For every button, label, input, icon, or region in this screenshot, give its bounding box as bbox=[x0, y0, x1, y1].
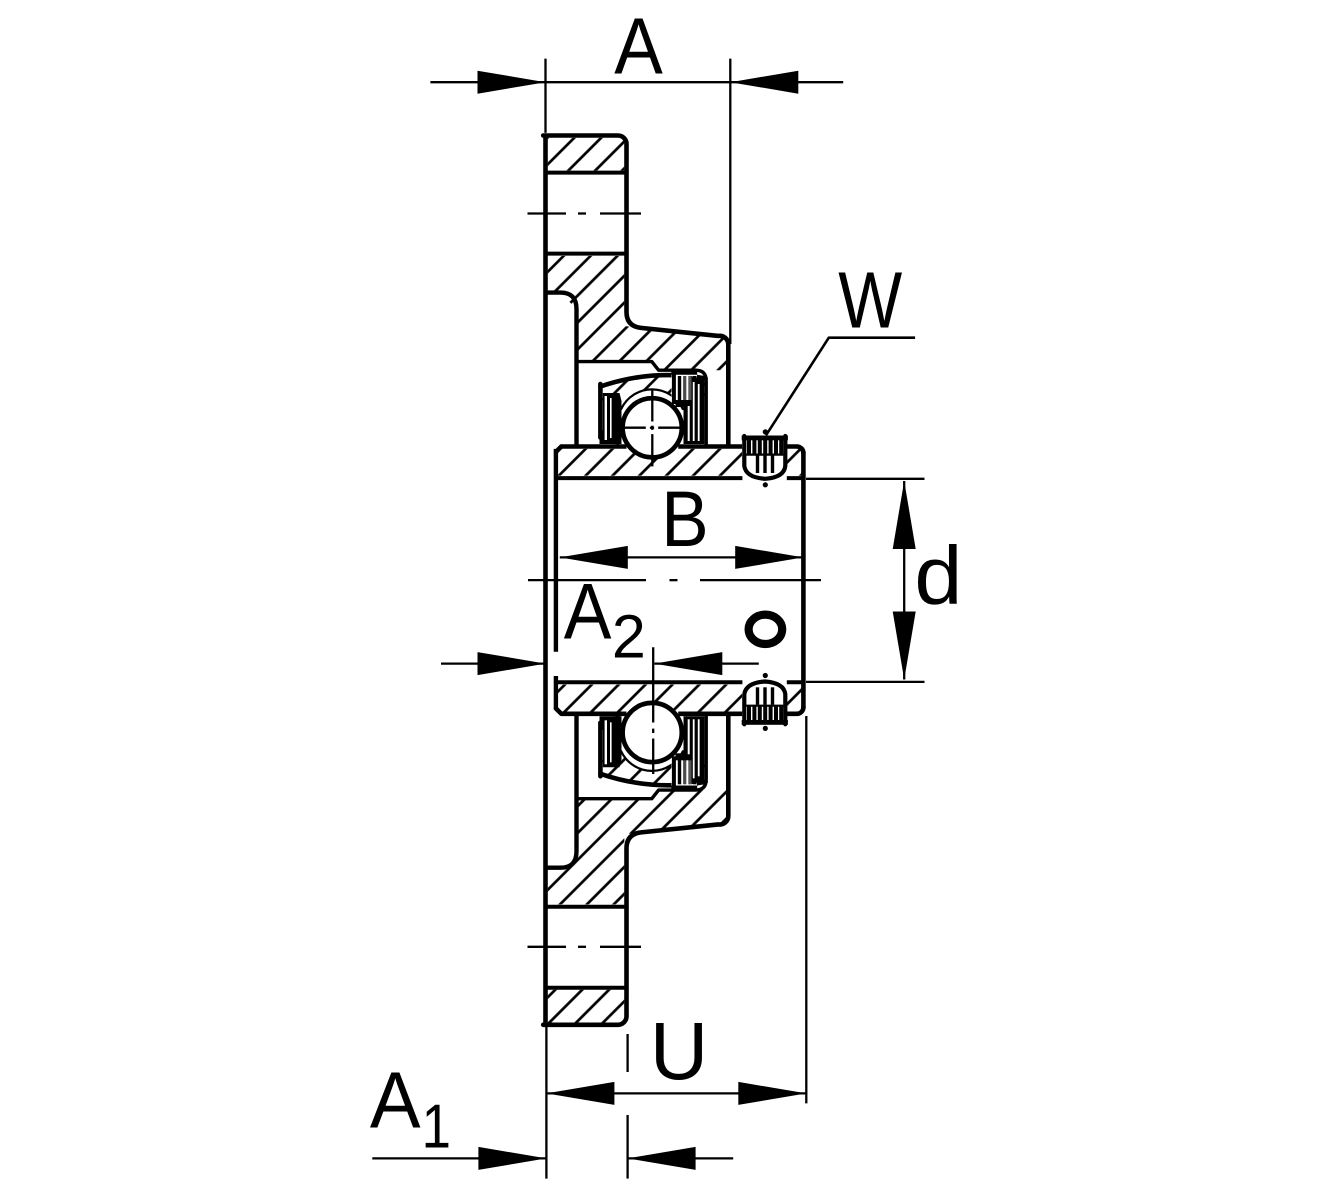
svg-text:A: A bbox=[370, 1055, 421, 1145]
svg-text:B: B bbox=[661, 475, 708, 563]
svg-text:W: W bbox=[838, 255, 902, 345]
svg-text:A: A bbox=[614, 2, 663, 91]
svg-text:1: 1 bbox=[422, 1093, 451, 1162]
svg-text:A: A bbox=[564, 567, 612, 655]
svg-text:2: 2 bbox=[612, 603, 646, 671]
svg-text:d: d bbox=[914, 528, 962, 621]
svg-text:U: U bbox=[650, 1006, 708, 1098]
